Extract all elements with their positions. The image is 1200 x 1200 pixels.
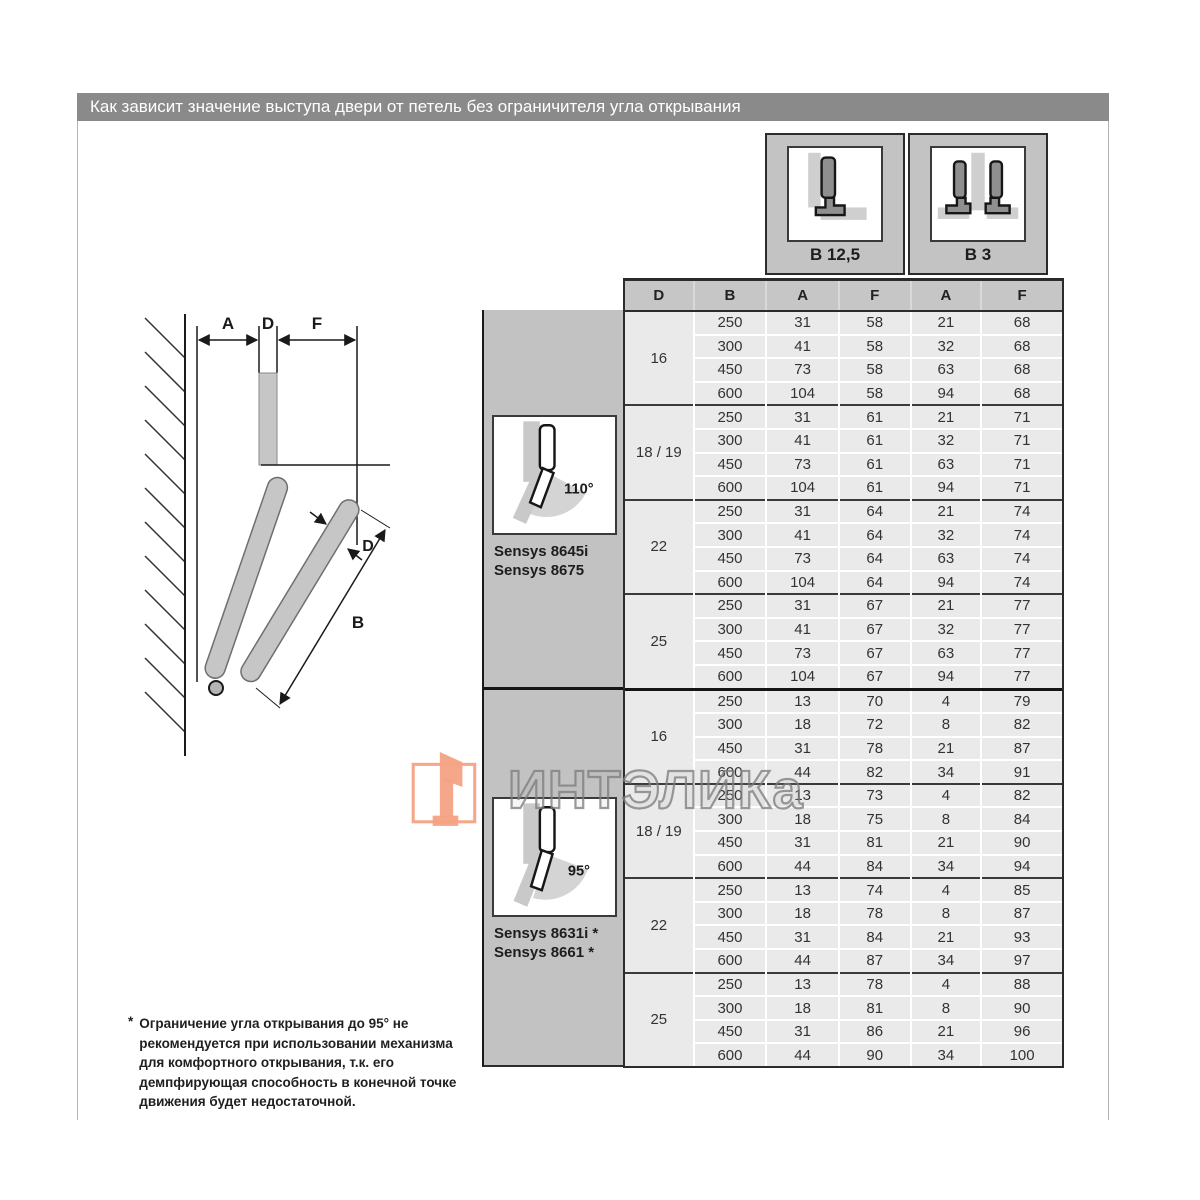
table-row: 222501374485: [625, 878, 1062, 902]
column-header: B: [694, 281, 767, 311]
dim-label-a: A: [222, 314, 234, 333]
value-cell: 94: [911, 665, 982, 689]
value-cell: 300: [694, 713, 767, 737]
column-header: F: [839, 281, 911, 311]
value-cell: 8: [911, 807, 982, 831]
thickness-group-label: 16: [625, 689, 694, 784]
value-cell: 4: [911, 689, 982, 713]
value-cell: 77: [981, 618, 1062, 642]
legend-box-b125: B 12,5: [765, 133, 905, 275]
value-cell: 97: [981, 949, 1062, 973]
value-cell: 84: [839, 925, 911, 949]
value-cell: 600: [694, 760, 767, 784]
spec-table: DBAFAF 162503158216830041583268450735863…: [623, 278, 1064, 1068]
value-cell: 78: [839, 973, 911, 997]
column-header: A: [766, 281, 839, 311]
value-cell: 450: [694, 547, 767, 571]
thickness-group-label: 18 / 19: [625, 784, 694, 878]
value-cell: 34: [911, 1043, 982, 1066]
value-cell: 18: [766, 713, 839, 737]
value-cell: 31: [766, 925, 839, 949]
value-cell: 18: [766, 902, 839, 926]
value-cell: 600: [694, 949, 767, 973]
value-cell: 31: [766, 500, 839, 524]
door-dimension-diagram: A D F D B: [128, 298, 413, 778]
value-cell: 70: [839, 689, 911, 713]
value-cell: 64: [839, 547, 911, 571]
value-cell: 104: [766, 382, 839, 406]
column-header: A: [911, 281, 982, 311]
value-cell: 450: [694, 453, 767, 477]
dim-label-b: B: [352, 613, 364, 632]
value-cell: 21: [911, 1020, 982, 1044]
value-cell: 87: [981, 902, 1062, 926]
value-cell: 600: [694, 1043, 767, 1066]
corner-mount-hinge-icon: [787, 146, 883, 242]
value-cell: 61: [839, 476, 911, 500]
table-row: 18 / 1925031612171: [625, 405, 1062, 429]
value-cell: 73: [766, 358, 839, 382]
value-cell: 41: [766, 523, 839, 547]
value-cell: 300: [694, 523, 767, 547]
value-cell: 88: [981, 973, 1062, 997]
closed-door-panel: [259, 373, 277, 465]
value-cell: 250: [694, 878, 767, 902]
value-cell: 41: [766, 429, 839, 453]
value-cell: 64: [839, 571, 911, 595]
value-cell: 63: [911, 358, 982, 382]
hinge-110-icon: 110°: [492, 415, 617, 535]
value-cell: 58: [839, 335, 911, 359]
thickness-group-label: 25: [625, 973, 694, 1066]
value-cell: 74: [981, 547, 1062, 571]
footnote-marker: *: [128, 1012, 133, 1110]
table-row: 1625031582168: [625, 311, 1062, 335]
value-cell: 600: [694, 382, 767, 406]
value-cell: 250: [694, 689, 767, 713]
value-cell: 81: [839, 996, 911, 1020]
value-cell: 81: [839, 831, 911, 855]
value-cell: 63: [911, 547, 982, 571]
value-cell: 68: [981, 311, 1062, 335]
value-cell: 67: [839, 618, 911, 642]
value-cell: 21: [911, 831, 982, 855]
frame-left-border: [77, 121, 78, 1120]
value-cell: 64: [839, 500, 911, 524]
value-cell: 82: [981, 784, 1062, 808]
value-cell: 82: [839, 760, 911, 784]
value-cell: 300: [694, 429, 767, 453]
value-cell: 8: [911, 996, 982, 1020]
value-cell: 8: [911, 713, 982, 737]
value-cell: 250: [694, 405, 767, 429]
value-cell: 250: [694, 784, 767, 808]
value-cell: 87: [981, 737, 1062, 761]
value-cell: 32: [911, 523, 982, 547]
page-title: Как зависит значение выступа двери от пе…: [77, 93, 1109, 121]
value-cell: 91: [981, 760, 1062, 784]
value-cell: 100: [981, 1043, 1062, 1066]
value-cell: 250: [694, 973, 767, 997]
model-name: Sensys 8645i: [494, 542, 588, 561]
value-cell: 96: [981, 1020, 1062, 1044]
value-cell: 77: [981, 594, 1062, 618]
value-cell: 32: [911, 335, 982, 359]
value-cell: 90: [981, 831, 1062, 855]
table-row: 2225031642174: [625, 500, 1062, 524]
value-cell: 300: [694, 807, 767, 831]
thickness-group-label: 16: [625, 311, 694, 405]
table-row: 252501378488: [625, 973, 1062, 997]
value-cell: 71: [981, 429, 1062, 453]
value-cell: 8: [911, 902, 982, 926]
value-cell: 104: [766, 476, 839, 500]
open-door-1: [203, 475, 291, 681]
table-row: 162501370479: [625, 689, 1062, 713]
value-cell: 4: [911, 878, 982, 902]
value-cell: 600: [694, 855, 767, 879]
value-cell: 300: [694, 335, 767, 359]
value-cell: 250: [694, 311, 767, 335]
value-cell: 450: [694, 358, 767, 382]
value-cell: 78: [839, 737, 911, 761]
dim-label-f: F: [312, 314, 322, 333]
value-cell: 21: [911, 500, 982, 524]
value-cell: 18: [766, 996, 839, 1020]
double-hinge-icon: [930, 146, 1026, 242]
value-cell: 74: [981, 500, 1062, 524]
value-cell: 67: [839, 641, 911, 665]
value-cell: 61: [839, 429, 911, 453]
value-cell: 44: [766, 949, 839, 973]
value-cell: 4: [911, 973, 982, 997]
column-header: F: [981, 281, 1062, 311]
value-cell: 44: [766, 1043, 839, 1066]
value-cell: 21: [911, 737, 982, 761]
value-cell: 87: [839, 949, 911, 973]
value-cell: 300: [694, 902, 767, 926]
hinge-models-110: Sensys 8645i Sensys 8675: [494, 542, 588, 580]
value-cell: 250: [694, 594, 767, 618]
value-cell: 32: [911, 618, 982, 642]
value-cell: 34: [911, 855, 982, 879]
thickness-group-label: 18 / 19: [625, 405, 694, 499]
value-cell: 68: [981, 382, 1062, 406]
value-cell: 94: [911, 571, 982, 595]
value-cell: 86: [839, 1020, 911, 1044]
value-cell: 41: [766, 618, 839, 642]
value-cell: 64: [839, 523, 911, 547]
value-cell: 63: [911, 453, 982, 477]
value-cell: 94: [981, 855, 1062, 879]
hinge-95-icon: 95°: [492, 797, 617, 917]
value-cell: 73: [766, 547, 839, 571]
value-cell: 450: [694, 1020, 767, 1044]
value-cell: 73: [839, 784, 911, 808]
value-cell: 58: [839, 358, 911, 382]
value-cell: 77: [981, 665, 1062, 689]
dim-label-d-top: D: [262, 314, 274, 333]
value-cell: 13: [766, 878, 839, 902]
value-cell: 61: [839, 453, 911, 477]
table-row: 18 / 192501373482: [625, 784, 1062, 808]
value-cell: 31: [766, 831, 839, 855]
footnote: * Ограничение угла открывания до 95° не …: [128, 1014, 460, 1112]
hinge-models-95: Sensys 8631i * Sensys 8661 *: [494, 924, 598, 962]
value-cell: 44: [766, 855, 839, 879]
value-cell: 94: [911, 382, 982, 406]
wall-hatching: [145, 318, 185, 732]
value-cell: 74: [981, 571, 1062, 595]
table-row: 2525031672177: [625, 594, 1062, 618]
catalog-page: Как зависит значение выступа двери от пе…: [0, 0, 1200, 1200]
thickness-group-label: 22: [625, 878, 694, 972]
value-cell: 13: [766, 689, 839, 713]
value-cell: 21: [911, 405, 982, 429]
value-cell: 93: [981, 925, 1062, 949]
value-cell: 90: [839, 1043, 911, 1066]
value-cell: 32: [911, 429, 982, 453]
hinge-pivot: [209, 681, 223, 695]
value-cell: 13: [766, 784, 839, 808]
model-name: Sensys 8675: [494, 561, 588, 580]
thickness-group-label: 25: [625, 594, 694, 689]
value-cell: 21: [911, 594, 982, 618]
value-cell: 44: [766, 760, 839, 784]
value-cell: 78: [839, 902, 911, 926]
column-header: D: [625, 281, 694, 311]
legend-label-b125: B 12,5: [767, 245, 903, 265]
value-cell: 74: [839, 878, 911, 902]
value-cell: 90: [981, 996, 1062, 1020]
value-cell: 79: [981, 689, 1062, 713]
value-cell: 71: [981, 453, 1062, 477]
value-cell: 104: [766, 571, 839, 595]
opening-angle-95: 95°: [568, 864, 590, 880]
value-cell: 94: [911, 476, 982, 500]
value-cell: 31: [766, 1020, 839, 1044]
value-cell: 75: [839, 807, 911, 831]
value-cell: 84: [981, 807, 1062, 831]
legend-box-b3: B 3: [908, 133, 1048, 275]
value-cell: 34: [911, 760, 982, 784]
value-cell: 450: [694, 641, 767, 665]
value-cell: 4: [911, 784, 982, 808]
footnote-text: Ограничение угла открывания до 95° не ре…: [139, 1014, 460, 1112]
value-cell: 84: [839, 855, 911, 879]
frame-right-border: [1108, 121, 1109, 1120]
value-cell: 18: [766, 807, 839, 831]
value-cell: 21: [911, 925, 982, 949]
value-cell: 74: [981, 523, 1062, 547]
value-cell: 13: [766, 973, 839, 997]
value-cell: 31: [766, 311, 839, 335]
model-name: Sensys 8661 *: [494, 943, 598, 962]
value-cell: 68: [981, 358, 1062, 382]
value-cell: 67: [839, 665, 911, 689]
value-cell: 250: [694, 500, 767, 524]
value-cell: 68: [981, 335, 1062, 359]
hinge-block-95: 95° Sensys 8631i * Sensys 8661 *: [482, 690, 623, 1067]
table-header-row: DBAFAF: [625, 281, 1062, 311]
value-cell: 104: [766, 665, 839, 689]
value-cell: 63: [911, 641, 982, 665]
value-cell: 77: [981, 641, 1062, 665]
value-cell: 82: [981, 713, 1062, 737]
value-cell: 61: [839, 405, 911, 429]
legend-label-b3: B 3: [910, 245, 1046, 265]
value-cell: 31: [766, 405, 839, 429]
value-cell: 72: [839, 713, 911, 737]
value-cell: 67: [839, 594, 911, 618]
value-cell: 600: [694, 476, 767, 500]
value-cell: 34: [911, 949, 982, 973]
value-cell: 31: [766, 737, 839, 761]
value-cell: 73: [766, 453, 839, 477]
value-cell: 71: [981, 405, 1062, 429]
value-cell: 58: [839, 382, 911, 406]
value-cell: 450: [694, 737, 767, 761]
value-cell: 600: [694, 571, 767, 595]
hinge-block-110: 110° Sensys 8645i Sensys 8675: [482, 310, 623, 690]
value-cell: 73: [766, 641, 839, 665]
value-cell: 450: [694, 831, 767, 855]
value-cell: 300: [694, 618, 767, 642]
value-cell: 21: [911, 311, 982, 335]
value-cell: 600: [694, 665, 767, 689]
model-name: Sensys 8631i *: [494, 924, 598, 943]
value-cell: 300: [694, 996, 767, 1020]
value-cell: 58: [839, 311, 911, 335]
value-cell: 41: [766, 335, 839, 359]
opening-angle-110: 110°: [564, 482, 594, 498]
value-cell: 31: [766, 594, 839, 618]
value-cell: 450: [694, 925, 767, 949]
thickness-group-label: 22: [625, 500, 694, 594]
value-cell: 71: [981, 476, 1062, 500]
value-cell: 85: [981, 878, 1062, 902]
